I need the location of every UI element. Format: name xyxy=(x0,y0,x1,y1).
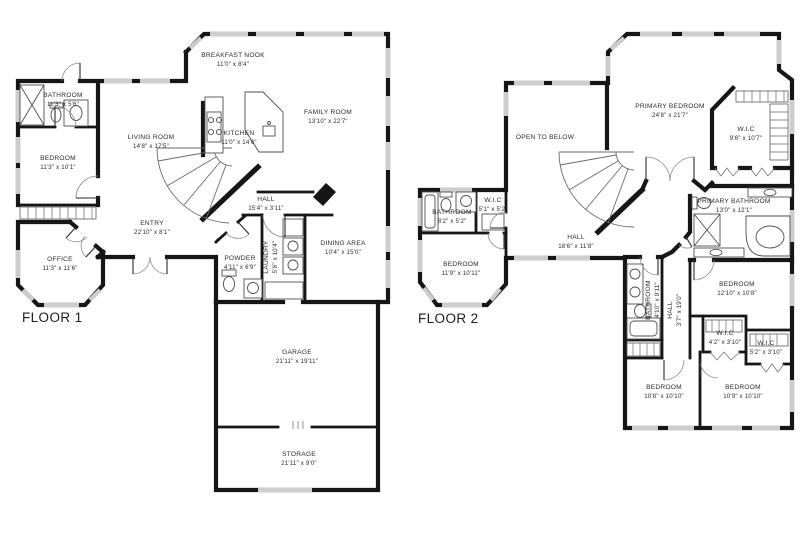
room-dims-bedroom-front: 11'9" x 10'11" xyxy=(442,270,481,277)
room-label-hall-f2: HALL xyxy=(567,234,585,241)
floor1-stairs xyxy=(157,148,232,223)
room-dims-entry: 22'10" x 8'1" xyxy=(134,229,170,236)
floor2-stairs xyxy=(559,152,634,227)
room-dims-wic-small: 5'1" x 5'2" xyxy=(479,206,508,213)
room-label-bathroom-hall-strip: BATHROOM xyxy=(645,280,652,320)
fireplace xyxy=(313,183,336,206)
room-dims-bathroom-f1: 11'3" x 5'6" xyxy=(47,101,79,108)
room-label-wic-b: W.I.C xyxy=(757,340,774,347)
room-dims-laundry: 5'8" x 10'4" xyxy=(272,241,279,273)
room-dims-family-room: 13'10" x 22'7" xyxy=(308,118,348,125)
room-label-bedroom-sw: BEDROOM xyxy=(646,384,682,391)
room-label-laundry: LAUNDRY xyxy=(263,240,270,273)
floor2-doors xyxy=(488,157,718,380)
room-dims-storage: 21'11" x 9'0" xyxy=(281,460,317,467)
room-label-primary-bathroom: PRIMARY BATHROOM xyxy=(697,198,770,205)
room-dims-kitchen: 11'0" x 14'6" xyxy=(221,139,257,146)
room-dims-office: 11'3" x 11'6" xyxy=(42,265,77,272)
floor1-plan: BATHROOM 11'3" x 5'6" BEDROOM 11'3" x 10… xyxy=(18,34,388,490)
room-dims-primary-bedroom: 24'8" x 21'7" xyxy=(652,112,688,119)
room-dims-bathroom-f2: 8'2" x 5'2" xyxy=(438,218,467,225)
room-label-dining-area: DINING AREA xyxy=(320,240,366,247)
room-label-primary-bedroom: PRIMARY BEDROOM xyxy=(635,103,704,110)
powder-fixtures xyxy=(222,270,262,298)
floorplan-image: BATHROOM 11'3" x 5'6" BEDROOM 11'3" x 10… xyxy=(0,0,800,533)
room-dims-wic-b: 5'2" x 3'10" xyxy=(750,349,782,356)
room-dims-hall-strip: 3'7" x 19'0" xyxy=(676,294,683,326)
room-label-bedroom-se: BEDROOM xyxy=(725,384,761,391)
room-dims-wic-primary: 9'6" x 10'7" xyxy=(730,135,762,142)
floor2-plan: OPEN TO BELOW PRIMARY BEDROOM 24'8" x 21… xyxy=(418,34,792,428)
room-label-wic-small: W.I.C xyxy=(484,197,501,204)
room-dims-primary-bathroom: 13'0" x 12'1" xyxy=(716,207,752,214)
room-label-bathroom-f2: BATHROOM xyxy=(432,209,472,216)
floorplan-canvas: BATHROOM 11'3" x 5'6" BEDROOM 11'3" x 10… xyxy=(0,0,800,533)
laundry-fixtures xyxy=(265,219,303,299)
room-dims-garage: 21'11" x 19'11" xyxy=(276,358,318,365)
room-dims-powder: 4'11" x 6'9" xyxy=(224,264,256,271)
room-dims-dining-area: 10'4" x 15'0" xyxy=(325,249,361,256)
room-label-entry: ENTRY xyxy=(140,220,164,227)
room-label-storage: STORAGE xyxy=(282,451,316,458)
room-label-wic-a: W.I.C xyxy=(716,330,733,337)
room-label-kitchen: KITCHEN xyxy=(224,130,255,137)
room-label-family-room: FAMILY ROOM xyxy=(304,109,352,116)
room-dims-bedroom-east: 12'10" x 10'8" xyxy=(717,290,757,297)
room-dims-wic-a: 4'2" x 3'10" xyxy=(709,339,741,346)
room-dims-breakfast-nook: 11'0" x 8'4" xyxy=(217,61,249,68)
room-dims-living-room: 14'8" x 17'5" xyxy=(133,143,169,150)
floor1-closet xyxy=(20,207,96,219)
room-label-bedroom-front: BEDROOM xyxy=(443,261,479,268)
room-dims-bedroom-sw: 10'8" x 10'10" xyxy=(644,393,684,400)
room-label-living-room: LIVING ROOM xyxy=(128,134,175,141)
room-label-bedroom-f1: BEDROOM xyxy=(40,155,76,162)
floor2-title: FLOOR 2 xyxy=(418,311,479,326)
room-dims-hall-f2: 18'6" x 11'8" xyxy=(558,243,594,250)
room-label-garage: GARAGE xyxy=(282,349,312,356)
room-label-hall-strip: HALL xyxy=(667,301,674,319)
room-dims-bedroom-f1: 11'3" x 10'1" xyxy=(40,164,76,171)
room-label-office: OFFICE xyxy=(47,256,73,263)
room-label-bedroom-east: BEDROOM xyxy=(719,281,755,288)
room-label-bathroom-f1: BATHROOM xyxy=(43,92,83,99)
room-label-open-to-below: OPEN TO BELOW xyxy=(516,134,575,141)
room-dims-bathroom-hall-strip: 4'10" x 9'11" xyxy=(654,282,661,318)
room-label-breakfast-nook: BREAKFAST NOOK xyxy=(201,52,265,59)
room-label-wic-primary: W.I.C xyxy=(737,126,754,133)
floor1-title: FLOOR 1 xyxy=(22,310,83,325)
room-label-hall-f1: HALL xyxy=(257,196,275,203)
room-label-powder: POWDER xyxy=(224,255,255,262)
room-dims-bedroom-se: 10'9" x 10'10" xyxy=(723,393,763,400)
room-dims-hall-f1: 15'4" x 3'11" xyxy=(248,205,284,212)
